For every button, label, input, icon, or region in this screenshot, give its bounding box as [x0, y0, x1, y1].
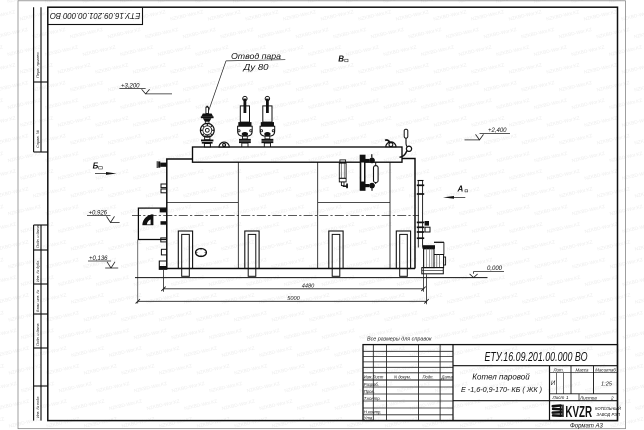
svg-text:NZKBD-Wor.KZ: NZKBD-Wor.KZ	[496, 45, 530, 58]
svg-text:+0,136: +0,136	[89, 256, 108, 262]
svg-text:NZKBD-Wor.KZ: NZKBD-Wor.KZ	[170, 168, 204, 181]
svg-text:NZKBD-Wor.KZ: NZKBD-Wor.KZ	[146, 399, 180, 412]
svg-text:N докум.: N докум.	[394, 374, 411, 379]
svg-text:NZKBD-Wor.KZ: NZKBD-Wor.KZ	[320, 62, 354, 75]
svg-text:NZKBD-Wor.KZ: NZKBD-Wor.KZ	[635, 399, 644, 412]
svg-text:NZKBD-Wor.KZ: NZKBD-Wor.KZ	[171, 328, 205, 341]
svg-text:NZKBD-Wor.KZ: NZKBD-Wor.KZ	[534, 257, 568, 270]
svg-text:NZKBD-Wor.KZ: NZKBD-Wor.KZ	[245, 9, 279, 22]
svg-text:NZKBD-Wor.KZ: NZKBD-Wor.KZ	[209, 328, 243, 341]
svg-text:Т.контр.: Т.контр.	[364, 396, 381, 401]
svg-text:NZKBD-Wor.KZ: NZKBD-Wor.KZ	[133, 168, 167, 181]
svg-text:Подп.: Подп.	[423, 374, 434, 379]
svg-text:NZKBD-Wor.KZ: NZKBD-Wor.KZ	[296, 186, 330, 199]
svg-text:NZKBD-Wor.KZ: NZKBD-Wor.KZ	[433, 62, 467, 75]
svg-text:NZKBD-Wor.KZ: NZKBD-Wor.KZ	[258, 27, 292, 40]
svg-text:NZKBD-Wor.KZ: NZKBD-Wor.KZ	[546, 62, 580, 75]
svg-text:NZKBD-Wor.KZ: NZKBD-Wor.KZ	[108, 133, 142, 146]
svg-text:NZKBD-Wor.KZ: NZKBD-Wor.KZ	[296, 292, 330, 305]
svg-text:NZKBD-Wor.KZ: NZKBD-Wor.KZ	[434, 168, 468, 181]
svg-text:NZKBD-Wor.KZ: NZKBD-Wor.KZ	[208, 168, 242, 181]
svg-text:NZKBD-Wor.KZ: NZKBD-Wor.KZ	[209, 381, 243, 394]
svg-text:NZKBD-Wor.KZ: NZKBD-Wor.KZ	[108, 186, 142, 199]
svg-text:NZKBD-Wor.KZ: NZKBD-Wor.KZ	[0, 239, 29, 252]
svg-text:NZKBD-Wor.KZ: NZKBD-Wor.KZ	[358, 62, 392, 75]
svg-text:NZKBD-Wor.KZ: NZKBD-Wor.KZ	[0, 27, 29, 40]
svg-text:В: В	[338, 54, 344, 63]
svg-text:2: 2	[610, 395, 614, 400]
svg-text:NZKBD-Wor.KZ: NZKBD-Wor.KZ	[583, 9, 617, 22]
svg-text:NZKBD-Wor.KZ: NZKBD-Wor.KZ	[584, 275, 618, 288]
svg-text:NZKBD-Wor.KZ: NZKBD-Wor.KZ	[0, 257, 4, 270]
svg-text:Разраб.: Разраб.	[364, 382, 379, 387]
svg-text:NZKBD-Wor.KZ: NZKBD-Wor.KZ	[459, 310, 493, 323]
svg-text:NZKBD-Wor.KZ: NZKBD-Wor.KZ	[572, 257, 606, 270]
svg-text:NZKBD-Wor.KZ: NZKBD-Wor.KZ	[0, 204, 4, 217]
svg-text:Инв. № подл.: Инв. № подл.	[36, 396, 40, 418]
svg-text:Инв. № дубл.: Инв. № дубл.	[36, 260, 40, 282]
svg-text:Взам. инв. №: Взам. инв. №	[36, 290, 40, 312]
svg-text:NZKBD-Wor.KZ: NZKBD-Wor.KZ	[621, 115, 644, 128]
svg-text:NZKBD-Wor.KZ: NZKBD-Wor.KZ	[95, 62, 129, 75]
svg-text:NZKBD-Wor.KZ: NZKBD-Wor.KZ	[547, 222, 581, 235]
svg-text:NZKBD-Wor.KZ: NZKBD-Wor.KZ	[145, 27, 179, 40]
svg-text:NZKBD-Wor.KZ: NZKBD-Wor.KZ	[0, 328, 17, 341]
svg-text:NZKBD-Wor.KZ: NZKBD-Wor.KZ	[622, 222, 644, 235]
svg-text:NZKBD-Wor.KZ: NZKBD-Wor.KZ	[158, 151, 192, 164]
svg-text:NZKBD-Wor.KZ: NZKBD-Wor.KZ	[0, 151, 4, 164]
svg-text:NZKBD-Wor.KZ: NZKBD-Wor.KZ	[572, 310, 606, 323]
svg-text:NZKBD-Wor.KZ: NZKBD-Wor.KZ	[132, 62, 166, 75]
svg-text:NZKBD-Wor.KZ: NZKBD-Wor.KZ	[283, 222, 317, 235]
svg-text:NZKBD-Wor.KZ: NZKBD-Wor.KZ	[258, 186, 292, 199]
svg-text:NZKBD-Wor.KZ: NZKBD-Wor.KZ	[246, 168, 280, 181]
svg-text:Масштаб: Масштаб	[595, 367, 616, 372]
svg-text:NZKBD-Wor.KZ: NZKBD-Wor.KZ	[635, 292, 644, 305]
svg-text:NZKBD-Wor.KZ: NZKBD-Wor.KZ	[133, 275, 167, 288]
svg-text:NZKBD-Wor.KZ: NZKBD-Wor.KZ	[272, 416, 306, 429]
svg-text:NZKBD-Wor.KZ: NZKBD-Wor.KZ	[196, 310, 230, 323]
svg-text:ЕТУ.16.09.201.00.000 ВО: ЕТУ.16.09.201.00.000 ВО	[50, 11, 140, 20]
svg-text:NZKBD-Wor.KZ: NZKBD-Wor.KZ	[609, 257, 643, 270]
svg-text:NZKBD-Wor.KZ: NZKBD-Wor.KZ	[170, 62, 204, 75]
svg-text:NZKBD-Wor.KZ: NZKBD-Wor.KZ	[434, 275, 468, 288]
svg-text:NZKBD-Wor.KZ: NZKBD-Wor.KZ	[321, 328, 355, 341]
svg-text:NZKBD-Wor.KZ: NZKBD-Wor.KZ	[184, 399, 218, 412]
svg-text:NZKBD-Wor.KZ: NZKBD-Wor.KZ	[8, 363, 42, 376]
svg-text:NZKBD-Wor.KZ: NZKBD-Wor.KZ	[597, 239, 631, 252]
svg-text:NZKBD-Wor.KZ: NZKBD-Wor.KZ	[46, 310, 80, 323]
svg-text:NZKBD-Wor.KZ: NZKBD-Wor.KZ	[584, 168, 618, 181]
svg-text:NZKBD-Wor.KZ: NZKBD-Wor.KZ	[220, 27, 254, 40]
svg-text:NZKBD-Wor.KZ: NZKBD-Wor.KZ	[95, 222, 129, 235]
svg-text:NZKBD-Wor.KZ: NZKBD-Wor.KZ	[409, 186, 443, 199]
svg-text:NZKBD-Wor.KZ: NZKBD-Wor.KZ	[0, 168, 17, 181]
svg-text:NZKBD-Wor.KZ: NZKBD-Wor.KZ	[371, 186, 405, 199]
svg-text:+3,200: +3,200	[121, 83, 140, 89]
svg-text:NZKBD-Wor.KZ: NZKBD-Wor.KZ	[20, 115, 54, 128]
svg-text:Е -1,6-0,9-170- КБ ( ЖК ): Е -1,6-0,9-170- КБ ( ЖК )	[461, 387, 542, 394]
svg-text:NZKBD-Wor.KZ: NZKBD-Wor.KZ	[370, 27, 404, 40]
svg-text:NZKBD-Wor.KZ: NZKBD-Wor.KZ	[534, 151, 568, 164]
svg-text:NZKBD-Wor.KZ: NZKBD-Wor.KZ	[484, 133, 518, 146]
svg-text:NZKBD-Wor.KZ: NZKBD-Wor.KZ	[82, 45, 116, 58]
svg-text:NZKBD-Wor.KZ: NZKBD-Wor.KZ	[145, 80, 179, 93]
svg-text:NZKBD-Wor.KZ: NZKBD-Wor.KZ	[234, 310, 268, 323]
svg-text:NZKBD-Wor.KZ: NZKBD-Wor.KZ	[358, 9, 392, 22]
svg-text:NZKBD-Wor.KZ: NZKBD-Wor.KZ	[634, 27, 644, 40]
svg-text:NZKBD-Wor.KZ: NZKBD-Wor.KZ	[0, 186, 29, 199]
svg-text:NZKBD-Wor.KZ: NZKBD-Wor.KZ	[146, 292, 180, 305]
svg-text:NZKBD-Wor.KZ: NZKBD-Wor.KZ	[408, 27, 442, 40]
svg-text:NZKBD-Wor.KZ: NZKBD-Wor.KZ	[208, 275, 242, 288]
svg-text:NZKBD-Wor.KZ: NZKBD-Wor.KZ	[0, 292, 30, 305]
svg-text:NZKBD-Wor.KZ: NZKBD-Wor.KZ	[0, 62, 16, 75]
svg-text:NZKBD-Wor.KZ: NZKBD-Wor.KZ	[597, 345, 631, 358]
svg-text:NZKBD-Wor.KZ: NZKBD-Wor.KZ	[84, 416, 118, 429]
svg-text:NZKBD-Wor.KZ: NZKBD-Wor.KZ	[622, 168, 644, 181]
svg-text:NZKBD-Wor.KZ: NZKBD-Wor.KZ	[471, 115, 505, 128]
svg-text:NZKBD-Wor.KZ: NZKBD-Wor.KZ	[584, 115, 618, 128]
svg-text:NZKBD-Wor.KZ: NZKBD-Wor.KZ	[284, 328, 318, 341]
svg-text:NZKBD-Wor.KZ: NZKBD-Wor.KZ	[584, 222, 618, 235]
svg-text:NZKBD-Wor.KZ: NZKBD-Wor.KZ	[546, 9, 580, 22]
svg-text:NZKBD-Wor.KZ: NZKBD-Wor.KZ	[21, 381, 55, 394]
svg-text:NZKBD-Wor.KZ: NZKBD-Wor.KZ	[133, 328, 167, 341]
svg-text:NZKBD-Wor.KZ: NZKBD-Wor.KZ	[521, 186, 555, 199]
svg-text:NZKBD-Wor.KZ: NZKBD-Wor.KZ	[295, 80, 329, 93]
svg-text:NZKBD-Wor.KZ: NZKBD-Wor.KZ	[71, 292, 105, 305]
svg-text:NZKBD-Wor.KZ: NZKBD-Wor.KZ	[321, 168, 355, 181]
svg-text:NZKBD-Wor.KZ: NZKBD-Wor.KZ	[471, 222, 505, 235]
svg-text:NZKBD-Wor.KZ: NZKBD-Wor.KZ	[0, 275, 17, 288]
svg-text:NZKBD-Wor.KZ: NZKBD-Wor.KZ	[446, 27, 480, 40]
svg-text:NZKBD-Wor.KZ: NZKBD-Wor.KZ	[359, 222, 393, 235]
svg-text:NZKBD-Wor.KZ: NZKBD-Wor.KZ	[183, 239, 217, 252]
svg-text:+2,400: +2,400	[488, 128, 507, 134]
svg-text:Подп. и дата: Подп. и дата	[36, 226, 40, 249]
svg-text:NZKBD-Wor.KZ: NZKBD-Wor.KZ	[609, 151, 643, 164]
svg-text:NZKBD-Wor.KZ: NZKBD-Wor.KZ	[283, 62, 317, 75]
svg-text:NZKBD-Wor.KZ: NZKBD-Wor.KZ	[497, 310, 531, 323]
svg-text:NZKBD-Wor.KZ: NZKBD-Wor.KZ	[246, 328, 280, 341]
svg-text:NZKBD-Wor.KZ: NZKBD-Wor.KZ	[33, 186, 67, 199]
svg-text:NZKBD-Wor.KZ: NZKBD-Wor.KZ	[359, 275, 393, 288]
svg-text:NZKBD-Wor.KZ: NZKBD-Wor.KZ	[221, 292, 255, 305]
svg-text:NZKBD-Wor.KZ: NZKBD-Wor.KZ	[546, 168, 580, 181]
svg-text:NZKBD-Wor.KZ: NZKBD-Wor.KZ	[120, 151, 154, 164]
svg-text:NZKBD-Wor.KZ: NZKBD-Wor.KZ	[371, 80, 405, 93]
svg-text:NZKBD-Wor.KZ: NZKBD-Wor.KZ	[0, 310, 5, 323]
svg-text:NZKBD-Wor.KZ: NZKBD-Wor.KZ	[321, 115, 355, 128]
svg-text:NZKBD-Wor.KZ: NZKBD-Wor.KZ	[0, 399, 30, 412]
svg-text:NZKBD-Wor.KZ: NZKBD-Wor.KZ	[546, 115, 580, 128]
svg-text:NZKBD-Wor.KZ: NZKBD-Wor.KZ	[171, 381, 205, 394]
svg-text:NZKBD-Wor.KZ: NZKBD-Wor.KZ	[383, 45, 417, 58]
svg-text:NZKBD-Wor.KZ: NZKBD-Wor.KZ	[421, 45, 455, 58]
svg-text:NZKBD-Wor.KZ: NZKBD-Wor.KZ	[508, 62, 542, 75]
svg-text:NZKBD-Wor.KZ: NZKBD-Wor.KZ	[58, 275, 92, 288]
svg-text:NZKBD-Wor.KZ: NZKBD-Wor.KZ	[320, 9, 354, 22]
svg-text:NZKBD-Wor.KZ: NZKBD-Wor.KZ	[296, 345, 330, 358]
svg-text:NZKBD-Wor.KZ: NZKBD-Wor.KZ	[358, 115, 392, 128]
svg-text:NZKBD-Wor.KZ: NZKBD-Wor.KZ	[459, 204, 493, 217]
svg-text:NZKBD-Wor.KZ: NZKBD-Wor.KZ	[0, 345, 30, 358]
svg-text:NZKBD-Wor.KZ: NZKBD-Wor.KZ	[533, 45, 567, 58]
svg-text:Формат А3: Формат А3	[570, 423, 603, 429]
svg-text:NZKBD-Wor.KZ: NZKBD-Wor.KZ	[609, 98, 643, 111]
svg-text:NZKBD-Wor.KZ: NZKBD-Wor.KZ	[146, 345, 180, 358]
svg-text:NZKBD-Wor.KZ: NZKBD-Wor.KZ	[258, 80, 292, 93]
svg-text:Дата: Дата	[441, 374, 454, 379]
svg-text:А: А	[457, 184, 464, 193]
svg-text:NZKBD-Wor.KZ: NZKBD-Wor.KZ	[0, 222, 17, 235]
svg-text:NZKBD-Wor.KZ: NZKBD-Wor.KZ	[121, 363, 155, 376]
svg-text:NZKBD-Wor.KZ: NZKBD-Wor.KZ	[70, 186, 104, 199]
svg-text:NZKBD-Wor.KZ: NZKBD-Wor.KZ	[597, 292, 631, 305]
svg-text:NZKBD-Wor.KZ: NZKBD-Wor.KZ	[83, 310, 117, 323]
svg-text:NZKBD-Wor.KZ: NZKBD-Wor.KZ	[333, 80, 367, 93]
svg-text:NZKBD-Wor.KZ: NZKBD-Wor.KZ	[157, 45, 191, 58]
svg-text:NZKBD-Wor.KZ: NZKBD-Wor.KZ	[145, 133, 179, 146]
svg-text:NZKBD-Wor.KZ: NZKBD-Wor.KZ	[296, 239, 330, 252]
svg-text:NZKBD-Wor.KZ: NZKBD-Wor.KZ	[95, 115, 129, 128]
svg-text:NZKBD-Wor.KZ: NZKBD-Wor.KZ	[509, 168, 543, 181]
svg-text:NZKBD-Wor.KZ: NZKBD-Wor.KZ	[345, 45, 379, 58]
svg-text:NZKBD-Wor.KZ: NZKBD-Wor.KZ	[120, 98, 154, 111]
svg-text:NZKBD-Wor.KZ: NZKBD-Wor.KZ	[96, 275, 130, 288]
svg-text:NZKBD-Wor.KZ: NZKBD-Wor.KZ	[196, 363, 230, 376]
svg-text:NZKBD-Wor.KZ: NZKBD-Wor.KZ	[221, 345, 255, 358]
svg-text:NZKBD-Wor.KZ: NZKBD-Wor.KZ	[422, 416, 456, 429]
svg-text:NZKBD-Wor.KZ: NZKBD-Wor.KZ	[45, 257, 79, 270]
svg-text:Листов: Листов	[579, 395, 597, 400]
svg-text:NZKBD-Wor.KZ: NZKBD-Wor.KZ	[221, 399, 255, 412]
svg-text:NZKBD-Wor.KZ: NZKBD-Wor.KZ	[0, 80, 29, 93]
svg-text:Н.контр.: Н.контр.	[364, 410, 382, 415]
svg-text:NZKBD-Wor.KZ: NZKBD-Wor.KZ	[547, 328, 581, 341]
svg-text:NZKBD-Wor.KZ: NZKBD-Wor.KZ	[0, 381, 17, 394]
svg-text:NZKBD-Wor.KZ: NZKBD-Wor.KZ	[221, 186, 255, 199]
svg-text:NZKBD-Wor.KZ: NZKBD-Wor.KZ	[121, 310, 155, 323]
svg-text:NZKBD-Wor.KZ: NZKBD-Wor.KZ	[159, 363, 193, 376]
svg-text:NZKBD-Wor.KZ: NZKBD-Wor.KZ	[45, 204, 79, 217]
svg-text:NZKBD-Wor.KZ: NZKBD-Wor.KZ	[0, 98, 4, 111]
svg-text:NZKBD-Wor.KZ: NZKBD-Wor.KZ	[7, 98, 41, 111]
svg-text:NZKBD-Wor.KZ: NZKBD-Wor.KZ	[171, 222, 205, 235]
svg-text:NZKBD-Wor.KZ: NZKBD-Wor.KZ	[521, 133, 555, 146]
svg-text:NZKBD-Wor.KZ: NZKBD-Wor.KZ	[271, 363, 305, 376]
svg-text:NZKBD-Wor.KZ: NZKBD-Wor.KZ	[258, 239, 292, 252]
svg-text:NZKBD-Wor.KZ: NZKBD-Wor.KZ	[0, 115, 16, 128]
svg-text:Лит.: Лит.	[553, 367, 564, 372]
svg-text:NZKBD-Wor.KZ: NZKBD-Wor.KZ	[396, 168, 430, 181]
svg-text:NZKBD-Wor.KZ: NZKBD-Wor.KZ	[95, 168, 129, 181]
svg-text:NZKBD-Wor.KZ: NZKBD-Wor.KZ	[333, 133, 367, 146]
svg-text:NZKBD-Wor.KZ: NZKBD-Wor.KZ	[484, 186, 518, 199]
svg-text:NZKBD-Wor.KZ: NZKBD-Wor.KZ	[433, 9, 467, 22]
svg-text:NZKBD-Wor.KZ: NZKBD-Wor.KZ	[408, 80, 442, 93]
svg-text:NZKBD-Wor.KZ: NZKBD-Wor.KZ	[508, 9, 542, 22]
svg-text:NZKBD-Wor.KZ: NZKBD-Wor.KZ	[170, 115, 204, 128]
svg-text:NZKBD-Wor.KZ: NZKBD-Wor.KZ	[284, 381, 318, 394]
svg-text:NZKBD-Wor.KZ: NZKBD-Wor.KZ	[409, 292, 443, 305]
svg-text:NZKBD-Wor.KZ: NZKBD-Wor.KZ	[20, 168, 54, 181]
svg-text:Лист: Лист	[552, 395, 565, 400]
svg-text:NZKBD-Wor.KZ: NZKBD-Wor.KZ	[471, 168, 505, 181]
svg-text:NZKBD-Wor.KZ: NZKBD-Wor.KZ	[70, 133, 104, 146]
svg-text:NZKBD-Wor.KZ: NZKBD-Wor.KZ	[585, 328, 619, 341]
svg-text:Перв. примен.: Перв. примен.	[35, 51, 40, 78]
svg-text:NZKBD-Wor.KZ: NZKBD-Wor.KZ	[472, 275, 506, 288]
svg-text:NZKBD-Wor.KZ: NZKBD-Wor.KZ	[521, 80, 555, 93]
svg-text:NZKBD-Wor.KZ: NZKBD-Wor.KZ	[559, 133, 593, 146]
svg-text:NZKBD-Wor.KZ: NZKBD-Wor.KZ	[57, 115, 91, 128]
svg-text:NZKBD-Wor.KZ: NZKBD-Wor.KZ	[571, 151, 605, 164]
svg-text:NZKBD-Wor.KZ: NZKBD-Wor.KZ	[308, 98, 342, 111]
svg-text:Изм.Лист: Изм.Лист	[364, 374, 384, 379]
svg-text:NZKBD-Wor.KZ: NZKBD-Wor.KZ	[0, 363, 5, 376]
svg-text:Все размеры для справок: Все размеры для справок	[367, 337, 432, 343]
svg-text:NZKBD-Wor.KZ: NZKBD-Wor.KZ	[0, 416, 5, 429]
svg-text:NZKBD-Wor.KZ: NZKBD-Wor.KZ	[295, 27, 329, 40]
svg-text:ЗАВОД РЭП: ЗАВОД РЭП	[597, 412, 621, 417]
svg-text:NZKBD-Wor.KZ: NZKBD-Wor.KZ	[296, 133, 330, 146]
svg-text:NZKBD-Wor.KZ: NZKBD-Wor.KZ	[45, 45, 79, 58]
svg-text:NZKBD-Wor.KZ: NZKBD-Wor.KZ	[297, 399, 331, 412]
svg-text:NZKBD-Wor.KZ: NZKBD-Wor.KZ	[522, 292, 556, 305]
svg-text:NZKBD-Wor.KZ: NZKBD-Wor.KZ	[371, 292, 405, 305]
svg-text:NZKBD-Wor.KZ: NZKBD-Wor.KZ	[196, 416, 230, 429]
svg-text:NZKBD-Wor.KZ: NZKBD-Wor.KZ	[334, 292, 368, 305]
svg-text:NZKBD-Wor.KZ: NZKBD-Wor.KZ	[234, 363, 268, 376]
svg-text:NZKBD-Wor.KZ: NZKBD-Wor.KZ	[0, 133, 29, 146]
svg-text:1: 1	[566, 395, 569, 400]
svg-text:NZKBD-Wor.KZ: NZKBD-Wor.KZ	[446, 80, 480, 93]
svg-text:NZKBD-Wor.KZ: NZKBD-Wor.KZ	[0, 0, 3, 5]
svg-text:NZKBD-Wor.KZ: NZKBD-Wor.KZ	[558, 27, 592, 40]
svg-text:NZKBD-Wor.KZ: NZKBD-Wor.KZ	[234, 416, 268, 429]
svg-text:Котел паровой: Котел паровой	[472, 373, 530, 382]
svg-text:NZKBD-Wor.KZ: NZKBD-Wor.KZ	[121, 416, 155, 429]
svg-text:NZKBD-Wor.KZ: NZKBD-Wor.KZ	[521, 27, 555, 40]
svg-text:Утв.: Утв.	[364, 416, 374, 421]
svg-text:NZKBD-Wor.KZ: NZKBD-Wor.KZ	[559, 186, 593, 199]
svg-text:NZKBD-Wor.KZ: NZKBD-Wor.KZ	[522, 239, 556, 252]
svg-text:NZKBD-Wor.KZ: NZKBD-Wor.KZ	[634, 239, 644, 252]
svg-text:NZKBD-Wor.KZ: NZKBD-Wor.KZ	[334, 239, 368, 252]
svg-text:NZKBD-Wor.KZ: NZKBD-Wor.KZ	[70, 80, 104, 93]
svg-text:NZKBD-Wor.KZ: NZKBD-Wor.KZ	[108, 345, 142, 358]
svg-text:NZKBD-Wor.KZ: NZKBD-Wor.KZ	[183, 186, 217, 199]
svg-text:NZKBD-Wor.KZ: NZKBD-Wor.KZ	[471, 9, 505, 22]
svg-text:NZKBD-Wor.KZ: NZKBD-Wor.KZ	[610, 416, 644, 429]
svg-text:NZKBD-Wor.KZ: NZKBD-Wor.KZ	[408, 133, 442, 146]
svg-text:NZKBD-Wor.KZ: NZKBD-Wor.KZ	[621, 62, 644, 75]
svg-text:NZKBD-Wor.KZ: NZKBD-Wor.KZ	[70, 239, 104, 252]
svg-text:NZKBD-Wor.KZ: NZKBD-Wor.KZ	[108, 239, 142, 252]
svg-text:NZKBD-Wor.KZ: NZKBD-Wor.KZ	[58, 328, 92, 341]
svg-text:NZKBD-Wor.KZ: NZKBD-Wor.KZ	[46, 363, 80, 376]
svg-text:NZKBD-Wor.KZ: NZKBD-Wor.KZ	[395, 9, 429, 22]
svg-text:NZKBD-Wor.KZ: NZKBD-Wor.KZ	[383, 98, 417, 111]
svg-text:NZKBD-Wor.KZ: NZKBD-Wor.KZ	[0, 45, 4, 58]
svg-text:NZKBD-Wor.KZ: NZKBD-Wor.KZ	[45, 151, 79, 164]
svg-text:NZKBD-Wor.KZ: NZKBD-Wor.KZ	[259, 345, 293, 358]
svg-text:NZKBD-Wor.KZ: NZKBD-Wor.KZ	[0, 9, 16, 22]
svg-text:NZKBD-Wor.KZ: NZKBD-Wor.KZ	[535, 416, 569, 429]
svg-text:NZKBD-Wor.KZ: NZKBD-Wor.KZ	[159, 416, 193, 429]
svg-text:NZKBD-Wor.KZ: NZKBD-Wor.KZ	[584, 62, 618, 75]
svg-text:NZKBD-Wor.KZ: NZKBD-Wor.KZ	[46, 416, 80, 429]
svg-text:NZKBD-Wor.KZ: NZKBD-Wor.KZ	[71, 345, 105, 358]
svg-text:NZKBD-Wor.KZ: NZKBD-Wor.KZ	[397, 381, 431, 394]
svg-text:NZKBD-Wor.KZ: NZKBD-Wor.KZ	[421, 204, 455, 217]
svg-text:NZKBD-Wor.KZ: NZKBD-Wor.KZ	[259, 399, 293, 412]
svg-text:NZKBD-Wor.KZ: NZKBD-Wor.KZ	[472, 328, 506, 341]
svg-text:NZKBD-Wor.KZ: NZKBD-Wor.KZ	[422, 310, 456, 323]
svg-text:0,000: 0,000	[487, 266, 503, 272]
svg-text:NZKBD-Wor.KZ: NZKBD-Wor.KZ	[459, 151, 493, 164]
svg-text:NZKBD-Wor.KZ: NZKBD-Wor.KZ	[333, 27, 367, 40]
svg-text:NZKBD-Wor.KZ: NZKBD-Wor.KZ	[610, 310, 644, 323]
svg-text:NZKBD-Wor.KZ: NZKBD-Wor.KZ	[496, 98, 530, 111]
svg-text:NZKBD-Wor.KZ: NZKBD-Wor.KZ	[96, 381, 130, 394]
svg-text:NZKBD-Wor.KZ: NZKBD-Wor.KZ	[458, 45, 492, 58]
svg-text:NZKBD-Wor.KZ: NZKBD-Wor.KZ	[246, 381, 280, 394]
svg-text:NZKBD-Wor.KZ: NZKBD-Wor.KZ	[447, 292, 481, 305]
svg-text:NZKBD-Wor.KZ: NZKBD-Wor.KZ	[484, 239, 518, 252]
svg-text:NZKBD-Wor.KZ: NZKBD-Wor.KZ	[634, 186, 644, 199]
svg-text:NZKBD-Wor.KZ: NZKBD-Wor.KZ	[483, 27, 517, 40]
svg-text:NZKBD-Wor.KZ: NZKBD-Wor.KZ	[421, 98, 455, 111]
svg-text:NZKBD-Wor.KZ: NZKBD-Wor.KZ	[460, 416, 494, 429]
svg-text:NZKBD-Wor.KZ: NZKBD-Wor.KZ	[246, 222, 280, 235]
svg-text:NZKBD-Wor.KZ: NZKBD-Wor.KZ	[421, 151, 455, 164]
svg-text:NZKBD-Wor.KZ: NZKBD-Wor.KZ	[559, 292, 593, 305]
svg-text:NZKBD-Wor.KZ: NZKBD-Wor.KZ	[120, 45, 154, 58]
svg-text:NZKBD-Wor.KZ: NZKBD-Wor.KZ	[83, 151, 117, 164]
svg-text:NZKBD-Wor.KZ: NZKBD-Wor.KZ	[283, 168, 317, 181]
svg-text:NZKBD-Wor.KZ: NZKBD-Wor.KZ	[433, 115, 467, 128]
svg-text:NZKBD-Wor.KZ: NZKBD-Wor.KZ	[509, 275, 543, 288]
svg-text:Ду 80: Ду 80	[242, 62, 269, 72]
svg-text:NZKBD-Wor.KZ: NZKBD-Wor.KZ	[559, 239, 593, 252]
svg-text:NZKBD-Wor.KZ: NZKBD-Wor.KZ	[547, 275, 581, 288]
svg-text:NZKBD-Wor.KZ: NZKBD-Wor.KZ	[471, 62, 505, 75]
svg-text:NZKBD-Wor.KZ: NZKBD-Wor.KZ	[134, 381, 168, 394]
svg-text:Подп. и дата: Подп. и дата	[36, 324, 40, 347]
svg-text:NZKBD-Wor.KZ: NZKBD-Wor.KZ	[270, 98, 304, 111]
svg-text:NZKBD-Wor.KZ: NZKBD-Wor.KZ	[45, 98, 79, 111]
svg-text:NZKBD-Wor.KZ: NZKBD-Wor.KZ	[82, 98, 116, 111]
svg-text:Справ. №: Справ. №	[35, 129, 40, 148]
svg-text:NZKBD-Wor.KZ: NZKBD-Wor.KZ	[221, 239, 255, 252]
svg-text:NZKBD-Wor.KZ: NZKBD-Wor.KZ	[283, 9, 317, 22]
svg-text:NZKBD-Wor.KZ: NZKBD-Wor.KZ	[396, 115, 430, 128]
svg-text:NZKBD-Wor.KZ: NZKBD-Wor.KZ	[509, 328, 543, 341]
svg-text:NZKBD-Wor.KZ: NZKBD-Wor.KZ	[146, 239, 180, 252]
svg-text:KVZR: KVZR	[565, 404, 592, 421]
svg-text:NZKBD-Wor.KZ: NZKBD-Wor.KZ	[635, 345, 644, 358]
svg-text:NZKBD-Wor.KZ: NZKBD-Wor.KZ	[458, 98, 492, 111]
svg-text:NZKBD-Wor.KZ: NZKBD-Wor.KZ	[170, 9, 204, 22]
svg-text:NZKBD-Wor.KZ: NZKBD-Wor.KZ	[497, 416, 531, 429]
svg-text:NZKBD-Wor.KZ: NZKBD-Wor.KZ	[184, 345, 218, 358]
svg-text:NZKBD-Wor.KZ: NZKBD-Wor.KZ	[484, 292, 518, 305]
svg-text:NZKBD-Wor.KZ: NZKBD-Wor.KZ	[133, 115, 167, 128]
svg-text:NZKBD-Wor.KZ: NZKBD-Wor.KZ	[346, 98, 380, 111]
